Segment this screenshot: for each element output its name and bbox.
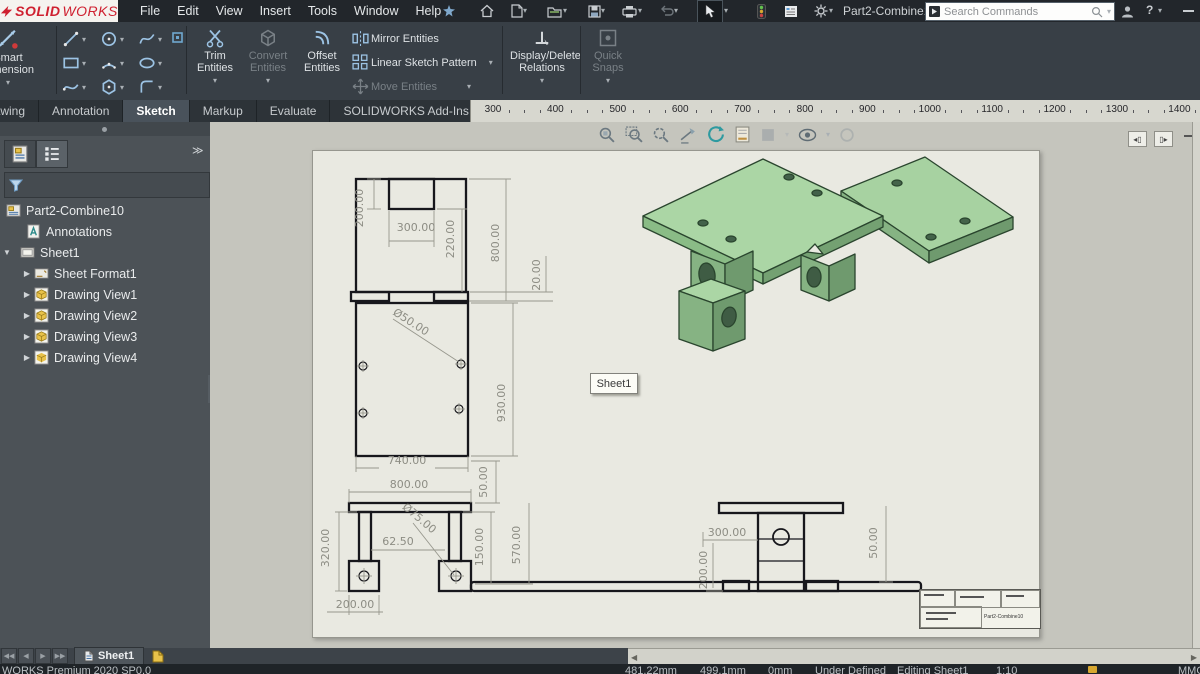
ruler-number: 900 xyxy=(859,104,876,115)
trim-entities-label: Trim Entities xyxy=(193,50,237,74)
ruler-tick xyxy=(1070,110,1071,113)
horizontal-scrollbar[interactable]: ◀ ▶ xyxy=(628,648,1200,665)
linear-pattern-icon xyxy=(352,54,369,71)
expand-arrow-icon[interactable]: ▶ xyxy=(20,353,34,362)
command-ribbon: Smart Dimension ▾ ▾ ▾ ▾ ▾ ▾ ▾ ▾ ▾ xyxy=(0,22,1200,101)
search-logo-icon xyxy=(929,6,940,17)
pin-menu-icon[interactable] xyxy=(440,2,458,20)
tree-root-part[interactable]: Part2-Combine10 xyxy=(0,200,210,221)
centerpoint-arc-tool[interactable]: ▾ xyxy=(100,54,124,72)
ruler-number: 700 xyxy=(734,104,751,115)
tab-sketch[interactable]: Sketch xyxy=(123,100,189,122)
ruler-tick xyxy=(1008,110,1009,113)
rebuild-traffic-light-icon[interactable] xyxy=(752,2,770,20)
drawing-sheet[interactable]: 200.00 300.00 220.00 800.00 20.00 xyxy=(312,150,1040,638)
property-manager-tab[interactable] xyxy=(36,140,68,168)
ruler-tick xyxy=(945,110,946,113)
linear-sketch-pattern-button[interactable]: Linear Sketch Pattern ▾ xyxy=(352,54,493,71)
drawing-views: 200.00 300.00 220.00 800.00 20.00 xyxy=(313,151,1039,637)
select-tool-button[interactable] xyxy=(697,0,723,23)
status-x-coordinate: 481.22mm xyxy=(625,665,677,674)
dim-570[interactable]: 570.00 xyxy=(510,526,523,565)
smart-dimension-label: Smart Dimension xyxy=(0,52,43,76)
tree-item-drawing-view1[interactable]: ▶ Drawing View1 xyxy=(0,284,210,305)
tab-drawing[interactable]: Drawing xyxy=(0,100,39,122)
ruler-tick xyxy=(1086,110,1087,113)
drawing-view-icon xyxy=(34,350,49,365)
options-list-icon[interactable] xyxy=(782,2,800,20)
brand-solid: SOLID xyxy=(15,3,60,19)
zoom-in-out-button[interactable] xyxy=(652,126,670,144)
ruler-tick xyxy=(665,110,666,113)
expand-arrow-icon[interactable]: ▶ xyxy=(20,311,34,320)
vertical-scrollbar[interactable] xyxy=(1192,122,1200,648)
help-dropdown[interactable]: ▾ xyxy=(1158,6,1162,15)
convert-entities-button[interactable]: Convert Entities ▾ xyxy=(242,28,294,85)
title-block: Part2-Combine10 xyxy=(919,589,1041,629)
print-dropdown[interactable]: ▾ xyxy=(638,6,642,15)
view-settings-button[interactable] xyxy=(798,128,817,142)
expand-arrow-icon[interactable]: ▶ xyxy=(20,332,34,341)
tree-item-label: Drawing View4 xyxy=(54,351,137,365)
spline-icon xyxy=(138,30,156,48)
status-unit-system[interactable]: MMGS xyxy=(1178,665,1200,674)
dim-740[interactable]: 740.00 xyxy=(388,454,427,467)
ruler-tick xyxy=(587,110,588,113)
tab-solidworks-add-ins[interactable]: SOLIDWORKS Add-Ins xyxy=(330,100,482,122)
menu-tools[interactable]: Tools xyxy=(308,4,337,18)
print-button[interactable] xyxy=(620,2,638,20)
cursor-icon xyxy=(705,5,716,18)
zoom-to-area-button[interactable] xyxy=(625,126,643,144)
dim-200-b[interactable]: 200.00 xyxy=(336,598,375,611)
status-editing-label: Editing Sheet1 xyxy=(897,665,969,674)
circle-icon xyxy=(100,30,118,48)
sheet-properties-button[interactable] xyxy=(734,126,751,144)
tree-item-label: Drawing View1 xyxy=(54,288,137,302)
ruler-number: 800 xyxy=(797,104,814,115)
menu-help[interactable]: Help xyxy=(416,4,442,18)
move-entities-icon xyxy=(352,78,369,95)
ruler-tick xyxy=(821,110,822,113)
search-placeholder: Search Commands xyxy=(944,6,1087,18)
menu-bar: File Edit View Insert Tools Window Help xyxy=(140,0,441,22)
ruler: 3004005006007008009001000110012001300140… xyxy=(470,100,1200,123)
add-sheet-button[interactable] xyxy=(152,650,164,663)
ruler-tick xyxy=(789,110,790,113)
dim-800-v[interactable]: 800.00 xyxy=(489,224,502,263)
tab-evaluate[interactable]: Evaluate xyxy=(257,100,331,122)
panel-drag-handle[interactable] xyxy=(102,127,107,132)
display-delete-relations-label: Display/Delete Relations xyxy=(510,50,574,74)
tree-item-sheet1[interactable]: ▼ Sheet1 xyxy=(0,242,210,263)
ruler-tick xyxy=(961,110,962,113)
tab-annotation[interactable]: Annotation xyxy=(39,100,123,122)
ruler-tick xyxy=(836,110,837,113)
tree-item-drawing-view4[interactable]: ▶ Drawing View4 xyxy=(0,347,210,368)
prev-sheet-button[interactable]: ◀ xyxy=(18,648,34,664)
quick-snaps-icon xyxy=(598,28,618,48)
dim-50-a[interactable]: 50.00 xyxy=(477,466,490,498)
dim-300-s[interactable]: 300.00 xyxy=(708,526,747,539)
mirror-entities-label: Mirror Entities xyxy=(371,33,439,45)
drawing-view1-geometry[interactable]: 200.00 300.00 220.00 800.00 20.00 xyxy=(351,179,553,301)
scroll-left-arrow[interactable]: ◀ xyxy=(628,653,640,662)
ruler-tick xyxy=(711,110,712,113)
centerpoint-arc-icon xyxy=(100,54,118,72)
sheet-tab-label: Sheet1 xyxy=(98,650,134,662)
quick-snaps-label: Quick Snaps xyxy=(588,50,628,74)
sketch-settings-button[interactable] xyxy=(172,32,183,43)
search-commands-box[interactable]: Search Commands ▾ xyxy=(925,2,1115,21)
dim-200[interactable]: 200.00 xyxy=(353,189,366,228)
ruler-tick xyxy=(571,110,572,113)
ruler-tick xyxy=(977,110,978,113)
ruler-tick xyxy=(602,110,603,113)
zoom-to-fit-button[interactable] xyxy=(598,126,616,144)
ruler-tick xyxy=(524,110,525,113)
app-version-label: WORKS Premium 2020 SP0.0 xyxy=(2,665,151,674)
tree-item-drawing-view2[interactable]: ▶ Drawing View2 xyxy=(0,305,210,326)
tree-item-drawing-view3[interactable]: ▶ Drawing View3 xyxy=(0,326,210,347)
convert-entities-icon xyxy=(258,28,278,48)
command-tab-bar: Drawing Annotation Sketch Markup Evaluat… xyxy=(0,100,1200,122)
feature-manager-icon xyxy=(11,145,29,163)
tree-item-annotations[interactable]: Annotations xyxy=(0,221,210,242)
solidworks-arrow-icon xyxy=(0,5,13,18)
ellipse-tool[interactable]: ▾ xyxy=(138,54,162,72)
feature-manager-panel: ≫ Part2-Combine10 Annotations ▼ Sheet1 xyxy=(0,122,210,648)
ruler-number: 1400 xyxy=(1168,104,1190,115)
user-account-icon[interactable] xyxy=(1118,2,1136,20)
tree-item-label: Sheet Format1 xyxy=(54,267,137,281)
line-icon xyxy=(62,30,80,48)
quick-snaps-button[interactable]: Quick Snaps ▾ xyxy=(586,28,630,85)
tree-item-label: Drawing View3 xyxy=(54,330,137,344)
status-tip-icon[interactable] xyxy=(1088,666,1097,673)
search-dropdown[interactable]: ▾ xyxy=(1107,7,1111,16)
rotate-view-button[interactable] xyxy=(706,125,725,144)
drawing-view-icon xyxy=(34,329,49,344)
smart-dimension-icon xyxy=(0,28,19,50)
ruler-tick xyxy=(758,110,759,113)
drawing-view-isometric[interactable] xyxy=(643,157,1013,351)
status-sheet-scale: 1:10 xyxy=(996,665,1017,674)
rectangle-icon xyxy=(62,54,80,72)
ruler-number: 1300 xyxy=(1106,104,1128,115)
arc-icon xyxy=(62,78,80,96)
line-tool[interactable]: ▾ xyxy=(62,30,86,48)
property-list-icon xyxy=(43,145,61,163)
settings-gear-icon[interactable] xyxy=(812,2,830,20)
expand-arrow-icon[interactable]: ▶ xyxy=(20,290,34,299)
ruler-tick xyxy=(1023,110,1024,113)
ruler-tick xyxy=(914,110,915,113)
tree-item-label: Sheet1 xyxy=(40,246,80,260)
help-button[interactable]: ? xyxy=(1146,3,1153,17)
ruler-tick xyxy=(774,110,775,113)
dim-200-s[interactable]: 200.00 xyxy=(697,551,710,590)
first-sheet-button[interactable]: ◀◀ xyxy=(1,648,17,664)
status-bar: WORKS Premium 2020 SP0.0 481.22mm 499.1m… xyxy=(0,664,1200,674)
expand-arrow-icon[interactable]: ▼ xyxy=(0,248,14,257)
status-defined-state: Under Defined xyxy=(815,665,886,674)
heads-up-view-toolbar: ▾ ▾ xyxy=(598,125,855,144)
panel-expand-chevron[interactable]: ≫ xyxy=(192,144,204,157)
settings-dropdown[interactable]: ▾ xyxy=(829,6,833,15)
solidworks-logo: SOLIDWORKS xyxy=(0,0,118,22)
new-file-dropdown[interactable]: ▾ xyxy=(523,6,527,15)
ruler-number: 600 xyxy=(672,104,689,115)
convert-entities-label: Convert Entities xyxy=(243,50,293,74)
appearance-button[interactable] xyxy=(839,127,855,143)
panel-top-strip xyxy=(0,122,210,136)
ruler-number: 1200 xyxy=(1043,104,1065,115)
status-y-coordinate: 499.1mm xyxy=(700,665,746,674)
mirror-entities-icon xyxy=(352,30,369,47)
sheet-tooltip-label: Sheet1 xyxy=(597,378,632,390)
offset-entities-label: Offset Entities xyxy=(299,50,345,74)
tree-filter-bar[interactable] xyxy=(4,172,210,198)
pane-split-left-button[interactable]: ◂▯ xyxy=(1128,131,1147,147)
sketch-square-icon xyxy=(172,32,183,43)
next-sheet-button[interactable]: ▶ xyxy=(35,648,51,664)
ellipse-icon xyxy=(138,54,156,72)
main-area: ≫ Part2-Combine10 Annotations ▼ Sheet1 xyxy=(0,122,1200,648)
tree-item-sheet-format1[interactable]: ▶ Sheet Format1 xyxy=(0,263,210,284)
dim-50-b[interactable]: 50.00 xyxy=(867,527,880,559)
drawing-view2-geometry[interactable]: Ø50.00 930.00 740.00 xyxy=(356,303,518,472)
circle-tool[interactable]: ▾ xyxy=(100,30,124,48)
mirror-entities-button[interactable]: Mirror Entities xyxy=(352,30,439,47)
drawing-view4-geometry[interactable]: 300.00 200.00 xyxy=(697,503,843,591)
display-style-button[interactable] xyxy=(760,127,776,143)
freeform-arc-tool[interactable]: ▾ xyxy=(62,78,86,96)
ruler-number: 400 xyxy=(547,104,564,115)
sheet-format-icon xyxy=(34,266,49,281)
ruler-tick xyxy=(899,110,900,113)
ruler-tick xyxy=(1133,110,1134,113)
rectangle-tool[interactable]: ▾ xyxy=(62,54,86,72)
ruler-number: 500 xyxy=(609,104,626,115)
sheet-icon xyxy=(20,245,35,260)
dim-320[interactable]: 320.00 xyxy=(319,529,332,568)
title-block-part-name: Part2-Combine10 xyxy=(984,614,1023,620)
dim-20[interactable]: 20.00 xyxy=(530,259,543,291)
move-entities-label: Move Entities xyxy=(371,81,437,93)
drawing-view-icon xyxy=(34,287,49,302)
tree-root-label: Part2-Combine10 xyxy=(26,204,124,218)
dim-62-50[interactable]: 62.50 xyxy=(382,535,414,548)
sheet1-tab[interactable]: Sheet1 xyxy=(74,647,144,665)
pane-split-right-button[interactable]: ▯▸ xyxy=(1154,131,1173,147)
last-sheet-button[interactable]: ▶▶ xyxy=(52,648,68,664)
menu-window[interactable]: Window xyxy=(354,4,398,18)
select-tool-dropdown[interactable]: ▾ xyxy=(724,6,728,15)
linear-pattern-label: Linear Sketch Pattern xyxy=(371,57,477,69)
drawing-view-icon xyxy=(34,308,49,323)
open-file-dropdown[interactable]: ▾ xyxy=(563,6,567,15)
annotations-icon xyxy=(26,224,41,239)
ruler-tick xyxy=(649,110,650,113)
graphics-area[interactable]: 200.00 300.00 220.00 800.00 20.00 xyxy=(210,122,1200,648)
drawing-document-icon xyxy=(6,203,21,218)
ruler-tick xyxy=(1148,110,1149,113)
dim-220[interactable]: 220.00 xyxy=(444,220,457,259)
ruler-tick xyxy=(852,110,853,113)
smart-dimension-button[interactable]: Smart Dimension ▾ xyxy=(0,28,50,87)
ruler-tick xyxy=(1101,110,1102,113)
solidworks-window: SOLIDWORKS File Edit View Insert Tools W… xyxy=(0,0,1200,674)
undo-dropdown[interactable]: ▾ xyxy=(674,6,678,15)
sheet-tooltip: Sheet1 xyxy=(590,373,638,394)
search-icon xyxy=(1091,6,1103,18)
ruler-tick xyxy=(883,110,884,113)
save-dropdown[interactable]: ▾ xyxy=(601,6,605,15)
ruler-tick xyxy=(696,110,697,113)
feature-manager-tree-tab[interactable] xyxy=(4,140,36,168)
display-delete-relations-icon xyxy=(532,28,552,48)
expand-arrow-icon[interactable]: ▶ xyxy=(20,269,34,278)
ruler-tick xyxy=(1164,110,1165,113)
spline-tool[interactable]: ▾ xyxy=(138,30,162,48)
open-file-button[interactable] xyxy=(545,2,563,20)
section-view-button[interactable] xyxy=(679,126,697,144)
trim-entities-button[interactable]: Trim Entities ▾ xyxy=(192,28,238,85)
sheet-tab-icon xyxy=(84,650,94,662)
ruler-tick xyxy=(727,110,728,113)
ruler-tick xyxy=(540,110,541,113)
ruler-tick xyxy=(1195,110,1196,113)
polygon-tool[interactable]: ▾ xyxy=(100,78,124,96)
dim-dia-50[interactable]: Ø50.00 xyxy=(391,306,432,339)
ruler-tick xyxy=(509,110,510,113)
display-delete-relations-button[interactable]: Display/Delete Relations ▾ xyxy=(510,28,574,85)
status-z-coordinate: 0mm xyxy=(768,665,792,674)
scroll-right-arrow[interactable]: ▶ xyxy=(1188,653,1200,662)
filter-funnel-icon xyxy=(9,178,23,192)
dim-150[interactable]: 150.00 xyxy=(473,528,486,567)
tree-item-label: Annotations xyxy=(46,225,112,239)
home-button[interactable] xyxy=(478,2,496,20)
ruler-number: 1100 xyxy=(981,104,1003,115)
fillet-icon xyxy=(138,78,156,96)
fillet-tool[interactable]: ▾ xyxy=(138,78,162,96)
brand-works: WORKS xyxy=(62,3,117,19)
move-entities-button[interactable]: Move Entities ▾ xyxy=(352,78,471,95)
minimize-window-button[interactable] xyxy=(1183,10,1194,12)
ruler-number: 300 xyxy=(485,104,502,115)
menu-file[interactable]: File xyxy=(140,4,160,18)
dim-930[interactable]: 930.00 xyxy=(495,384,508,423)
tree-item-label: Drawing View2 xyxy=(54,309,137,323)
menu-insert[interactable]: Insert xyxy=(260,4,291,18)
menu-edit[interactable]: Edit xyxy=(177,4,199,18)
ruler-number: 1000 xyxy=(919,104,941,115)
offset-entities-icon xyxy=(312,28,332,48)
tab-markup[interactable]: Markup xyxy=(190,100,257,122)
title-bar: SOLIDWORKS File Edit View Insert Tools W… xyxy=(0,0,1200,22)
dim-300[interactable]: 300.00 xyxy=(397,221,436,234)
ruler-tick xyxy=(633,110,634,113)
menu-view[interactable]: View xyxy=(216,4,243,18)
dim-800-w[interactable]: 800.00 xyxy=(390,478,429,491)
polygon-icon xyxy=(100,78,118,96)
trim-entities-icon xyxy=(205,28,225,48)
ruler-tick xyxy=(1039,110,1040,113)
offset-entities-button[interactable]: Offset Entities xyxy=(298,28,346,74)
